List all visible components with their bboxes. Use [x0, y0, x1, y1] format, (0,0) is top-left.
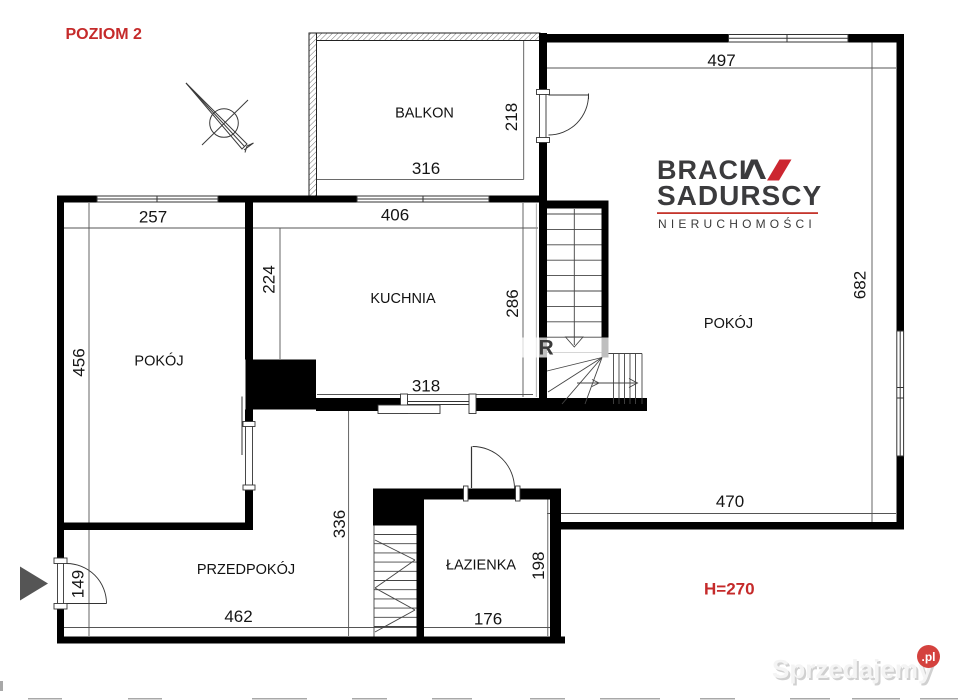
svg-text:Sprzedajemy: Sprzedajemy: [772, 654, 933, 684]
svg-text:POKÓJ: POKÓJ: [704, 315, 753, 332]
svg-text:336: 336: [330, 510, 349, 538]
svg-text:.pl: .pl: [922, 650, 936, 664]
svg-text:257: 257: [139, 208, 167, 227]
svg-text:R: R: [539, 337, 554, 360]
svg-text:316: 316: [412, 159, 440, 178]
svg-text:KUCHNIA: KUCHNIA: [370, 291, 436, 307]
svg-text:POZIOM 2: POZIOM 2: [66, 26, 143, 43]
svg-text:POKÓJ: POKÓJ: [134, 353, 183, 370]
svg-text:470: 470: [716, 492, 744, 511]
svg-text:176: 176: [474, 610, 502, 629]
svg-text:682: 682: [851, 271, 870, 299]
svg-text:406: 406: [381, 206, 409, 225]
svg-text:497: 497: [707, 51, 735, 70]
svg-text:SADURSCY: SADURSCY: [657, 180, 822, 211]
svg-text:NIERUCHOMOŚCI: NIERUCHOMOŚCI: [658, 216, 816, 231]
svg-text:456: 456: [70, 348, 89, 376]
svg-text:198: 198: [529, 552, 548, 580]
svg-text:BALKON: BALKON: [395, 106, 454, 122]
svg-text:218: 218: [502, 103, 521, 131]
svg-text:462: 462: [224, 607, 252, 626]
svg-text:PRZEDPOKÓJ: PRZEDPOKÓJ: [197, 561, 295, 578]
svg-text:286: 286: [503, 289, 522, 317]
svg-text:ŁAZIENKA: ŁAZIENKA: [446, 558, 516, 574]
svg-text:224: 224: [260, 265, 279, 293]
svg-text:318: 318: [412, 377, 440, 396]
svg-text:H=270: H=270: [704, 580, 755, 599]
svg-text:149: 149: [69, 570, 88, 598]
